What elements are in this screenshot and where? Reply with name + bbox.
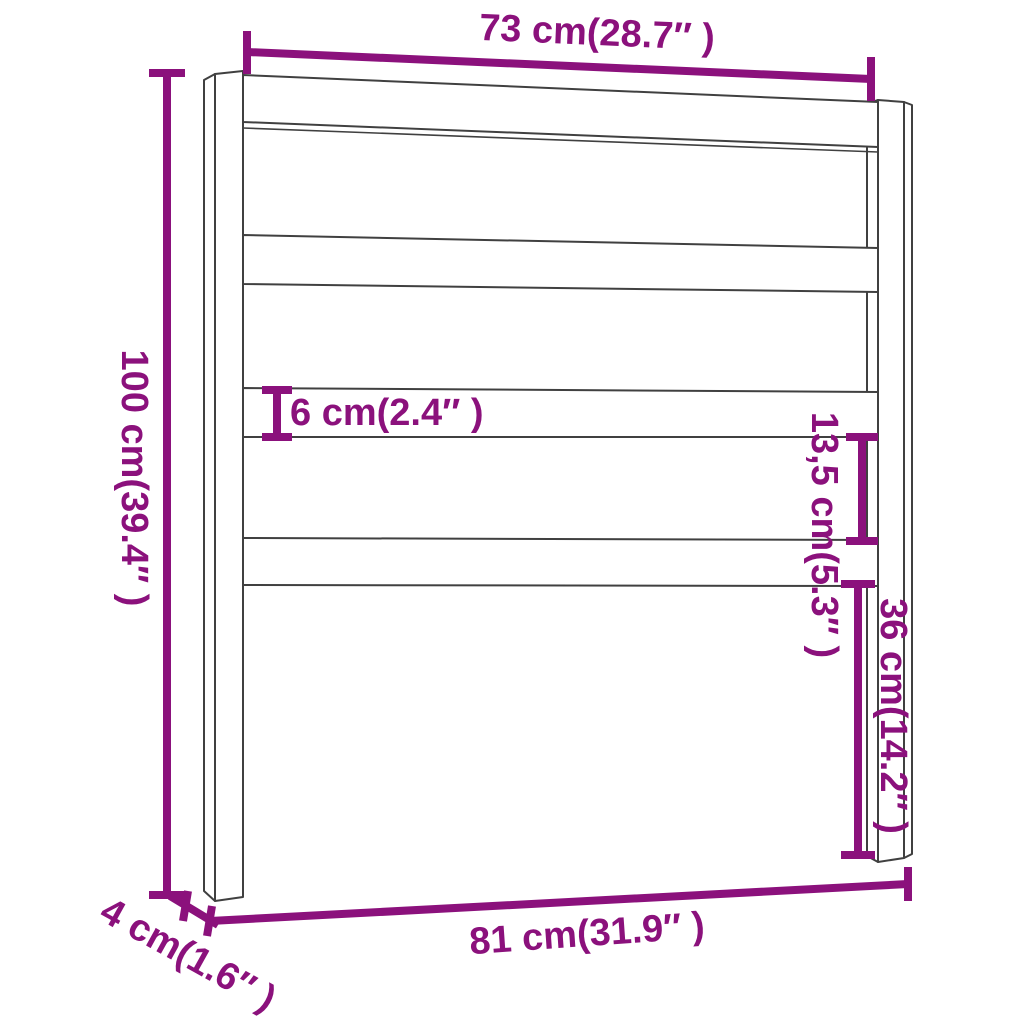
dim-overall-height: 100 cm(39.4″ ) (113, 73, 185, 895)
dim-lower-leg: 36 cm(14.2″ ) (841, 584, 914, 855)
dim-gap-label: 13,5 cm(5.3″ ) (803, 412, 845, 658)
left-post-front-face (215, 71, 243, 901)
left-post-side-face (204, 74, 215, 901)
top-rail (243, 75, 878, 147)
headboard-diagram-svg: 73 cm(28.7″ ) 100 cm(39.4″ ) 6 cm(2.4″ ) (0, 0, 1024, 1024)
dim-depth-left-tick (183, 891, 188, 921)
dim-bottom-label: 81 cm(31.9″ ) (468, 905, 706, 963)
dim-top-line (247, 52, 871, 79)
slat-2 (243, 235, 878, 292)
slat-4 (243, 538, 878, 586)
product-dimension-image: 73 cm(28.7″ ) 100 cm(39.4″ ) 6 cm(2.4″ ) (0, 0, 1024, 1024)
dim-leg-depth: 4 cm(1.6″ ) (93, 890, 283, 1021)
dim-left-label: 100 cm(39.4″ ) (113, 350, 155, 607)
dim-slat-label: 6 cm(2.4″ ) (290, 392, 484, 434)
dim-slat-height: 6 cm(2.4″ ) (262, 390, 484, 437)
dim-overall-width-bottom: 81 cm(31.9″ ) (210, 867, 908, 963)
dim-top-label: 73 cm(28.7″ ) (478, 7, 715, 59)
dim-leg-label: 36 cm(14.2″ ) (872, 598, 914, 834)
